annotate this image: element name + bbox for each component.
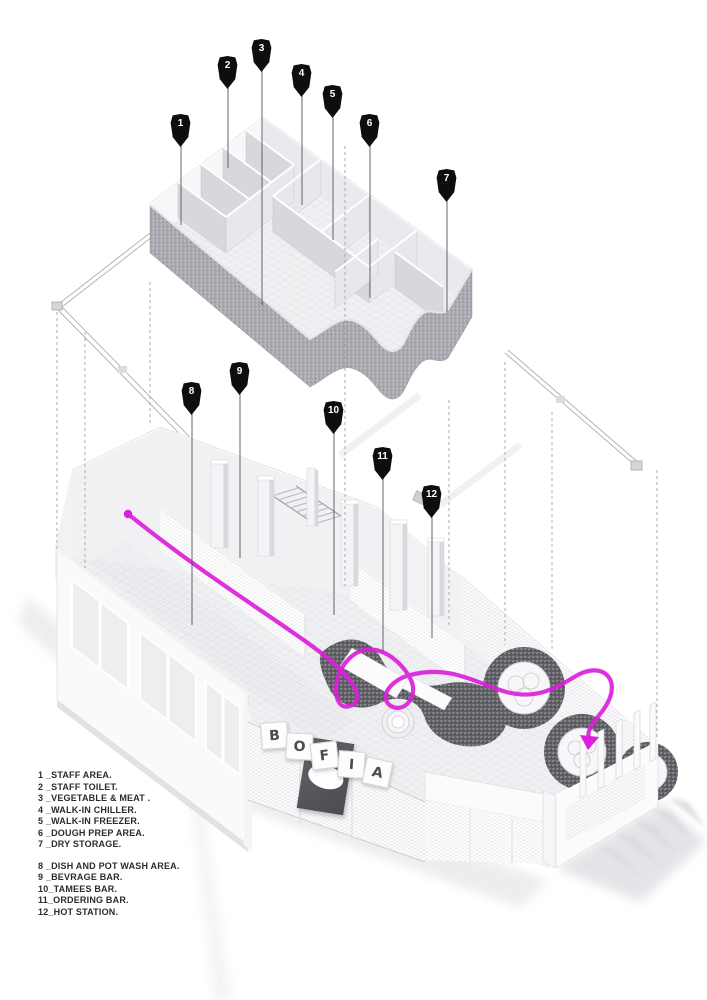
marker-pin-8: 8 — [181, 382, 202, 415]
legend-item: 12_HOT STATION. — [38, 907, 180, 919]
marker-number: 6 — [367, 119, 373, 129]
sign-letter-tile: A — [361, 756, 393, 788]
sign-letter: O — [293, 738, 306, 755]
legend-item: 1 _STAFF AREA. — [38, 770, 180, 782]
pin-icon: 5 — [322, 85, 343, 118]
sign-letter-tile: F — [309, 740, 339, 770]
marker-pin-12: 12 — [421, 485, 442, 518]
sign-letter: A — [371, 764, 385, 782]
legend-item: 11_ORDERING BAR. — [38, 895, 180, 907]
legend: 1 _STAFF AREA. 2 _STAFF TOILET. 3 _VEGET… — [38, 770, 180, 918]
pin-icon: 11 — [372, 447, 393, 480]
marker-number: 7 — [444, 174, 450, 184]
legend-item: 3 _VEGETABLE & MEAT . — [38, 793, 180, 805]
pin-icon: 2 — [217, 56, 238, 89]
marker-number: 9 — [237, 367, 243, 377]
legend-item: 6 _DOUGH PREP AREA. — [38, 828, 180, 840]
pin-icon: 3 — [251, 39, 272, 72]
marker-pin-4: 4 — [291, 64, 312, 97]
legend-item: 9 _BEVRAGE BAR. — [38, 872, 180, 884]
upper-level-plan — [150, 117, 472, 399]
legend-item: 8 _DISH AND POT WASH AREA. — [38, 861, 180, 873]
pin-icon: 7 — [436, 169, 457, 202]
legend-item: 5 _WALK-IN FREEZER. — [38, 816, 180, 828]
exploded-axonometric-drawing: B O F I A 1 2 3 4 5 6 7 8 9 10 11 12 1 _… — [0, 0, 707, 1000]
marker-pin-2: 2 — [217, 56, 238, 89]
marker-number: 8 — [189, 387, 195, 397]
pin-icon: 6 — [359, 114, 380, 147]
marker-number: 12 — [426, 490, 437, 500]
pin-icon: 1 — [170, 114, 191, 147]
marker-pin-7: 7 — [436, 169, 457, 202]
sign-letter: I — [348, 756, 354, 772]
marker-pin-11: 11 — [372, 447, 393, 480]
sign-letter-tile: B — [260, 721, 289, 750]
pin-icon: 12 — [421, 485, 442, 518]
pin-icon: 8 — [181, 382, 202, 415]
marker-pin-6: 6 — [359, 114, 380, 147]
sign-letter: B — [269, 727, 281, 744]
pin-icon: 9 — [229, 362, 250, 395]
marker-number: 10 — [328, 406, 339, 416]
pin-icon: 10 — [323, 401, 344, 434]
marker-number: 1 — [178, 119, 184, 129]
marker-pin-9: 9 — [229, 362, 250, 395]
marker-pin-10: 10 — [323, 401, 344, 434]
marker-number: 4 — [299, 69, 305, 79]
path-start-dot — [124, 510, 132, 518]
legend-item: 2 _STAFF TOILET. — [38, 782, 180, 794]
sign-letter: F — [319, 747, 330, 764]
pin-icon: 4 — [291, 64, 312, 97]
marker-pin-1: 1 — [170, 114, 191, 147]
marker-pin-5: 5 — [322, 85, 343, 118]
marker-number: 11 — [377, 452, 388, 462]
marker-number: 2 — [225, 61, 231, 71]
legend-item: 10_TAMEES BAR. — [38, 884, 180, 896]
legend-group-1: 1 _STAFF AREA. 2 _STAFF TOILET. 3 _VEGET… — [38, 770, 180, 851]
marker-number: 5 — [330, 90, 336, 100]
marker-pin-3: 3 — [251, 39, 272, 72]
legend-item: 7 _DRY STORAGE. — [38, 839, 180, 851]
marker-number: 3 — [259, 44, 265, 54]
legend-item: 4 _WALK-IN CHILLER. — [38, 805, 180, 817]
sign-letter-tile: I — [337, 750, 366, 779]
legend-group-2: 8 _DISH AND POT WASH AREA. 9 _BEVRAGE BA… — [38, 861, 180, 919]
